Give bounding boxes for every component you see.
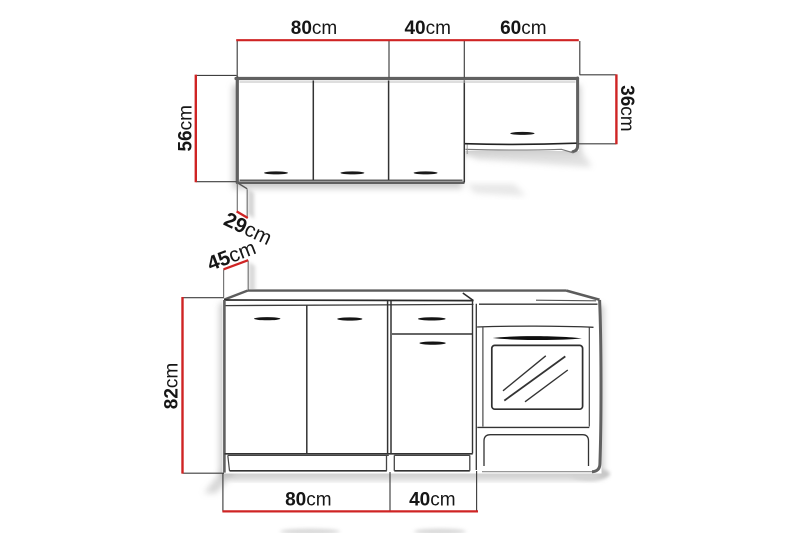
- svg-text:60cm: 60cm: [500, 18, 546, 39]
- svg-text:40cm: 40cm: [404, 18, 450, 39]
- svg-text:36cm: 36cm: [616, 85, 637, 131]
- svg-text:40cm: 40cm: [409, 489, 455, 510]
- svg-text:56cm: 56cm: [175, 105, 196, 151]
- svg-text:80cm: 80cm: [291, 18, 337, 39]
- svg-text:82cm: 82cm: [162, 363, 183, 409]
- svg-text:80cm: 80cm: [285, 489, 331, 510]
